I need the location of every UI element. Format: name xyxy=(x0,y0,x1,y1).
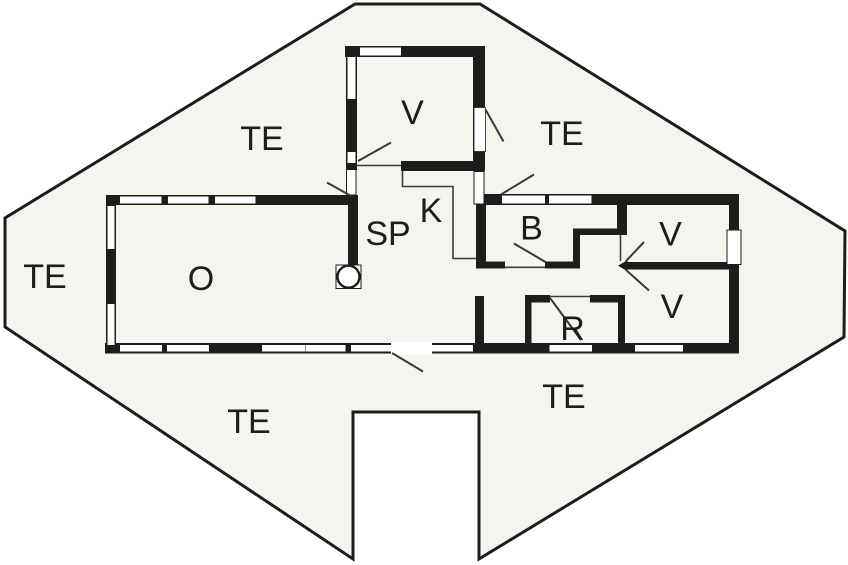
svg-text:TE: TE xyxy=(227,403,270,441)
svg-text:V: V xyxy=(401,94,424,132)
svg-text:R: R xyxy=(560,310,585,348)
svg-text:B: B xyxy=(520,210,543,248)
svg-text:V: V xyxy=(661,288,684,326)
svg-text:TE: TE xyxy=(540,115,583,153)
svg-text:TE: TE xyxy=(240,120,283,158)
svg-text:TE: TE xyxy=(23,258,66,296)
svg-text:O: O xyxy=(188,260,214,298)
svg-text:V: V xyxy=(659,216,682,254)
svg-text:K: K xyxy=(420,192,443,230)
svg-text:SP: SP xyxy=(365,215,410,253)
svg-text:TE: TE xyxy=(542,378,585,416)
